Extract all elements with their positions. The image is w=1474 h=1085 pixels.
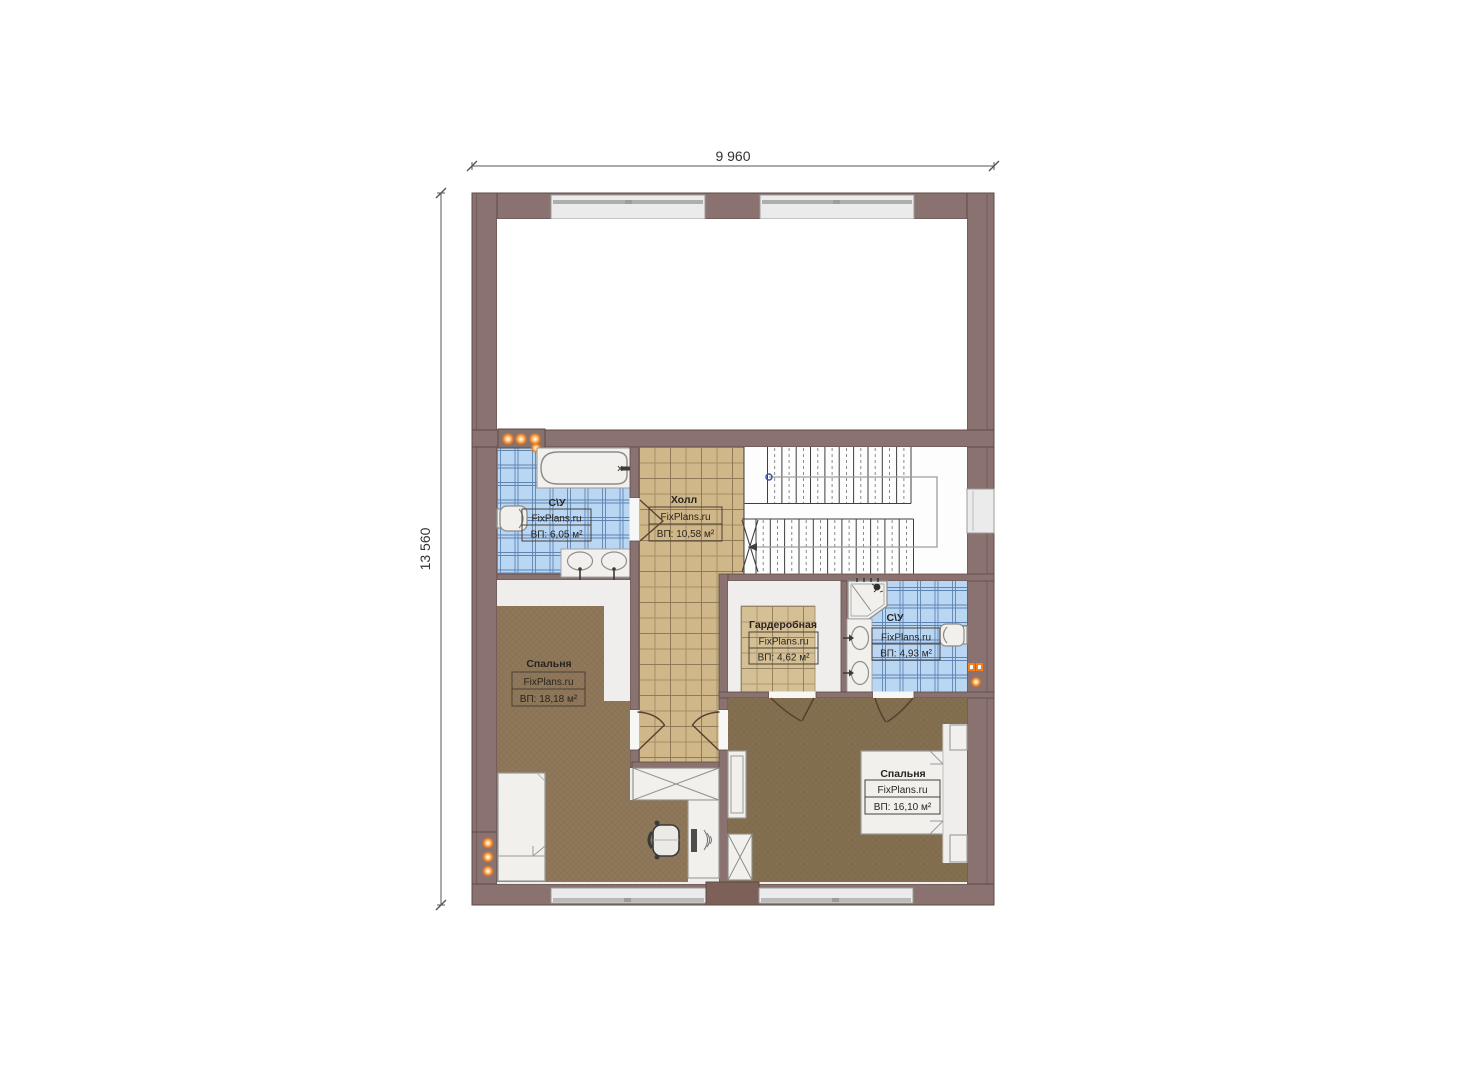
svg-text:Гардеробная: Гардеробная <box>749 619 817 631</box>
svg-text:ВП: 10,58 м²: ВП: 10,58 м² <box>657 529 715 540</box>
svg-text:ВП: 18,18 м²: ВП: 18,18 м² <box>520 694 578 705</box>
svg-text:ВП: 16,10 м²: ВП: 16,10 м² <box>874 802 932 813</box>
svg-text:FixPlans.ru: FixPlans.ru <box>877 785 927 796</box>
svg-text:С\У: С\У <box>886 612 904 624</box>
svg-text:ВП: 4,93 м²: ВП: 4,93 м² <box>880 649 933 660</box>
svg-text:13 560: 13 560 <box>417 527 433 570</box>
svg-text:Спальня: Спальня <box>526 658 571 670</box>
svg-text:ВП: 4,62 м²: ВП: 4,62 м² <box>758 653 811 664</box>
svg-text:FixPlans.ru: FixPlans.ru <box>660 512 710 523</box>
svg-text:9 960: 9 960 <box>715 148 750 164</box>
svg-text:ВП: 6,05 м²: ВП: 6,05 м² <box>531 530 584 541</box>
svg-text:FixPlans.ru: FixPlans.ru <box>758 637 808 648</box>
svg-text:Спальня: Спальня <box>880 768 925 780</box>
svg-text:FixPlans.ru: FixPlans.ru <box>881 633 931 644</box>
svg-text:С\У: С\У <box>548 497 566 509</box>
svg-text:FixPlans.ru: FixPlans.ru <box>523 677 573 688</box>
svg-text:Холл: Холл <box>671 494 697 506</box>
svg-text:FixPlans.ru: FixPlans.ru <box>531 514 581 525</box>
